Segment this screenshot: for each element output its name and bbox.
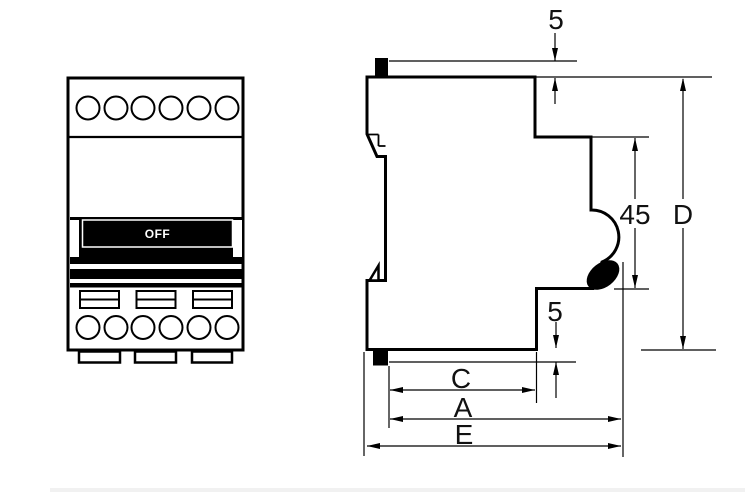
arrowhead-up xyxy=(680,78,686,91)
mounting-tab xyxy=(79,352,120,363)
dim-depth-c: C xyxy=(390,363,535,394)
arrowhead-down xyxy=(680,336,686,349)
front-view: OFF xyxy=(68,78,243,363)
page-edge-strip xyxy=(50,488,745,492)
arrowhead-right xyxy=(608,443,621,449)
switch-band-left-notch xyxy=(70,220,79,257)
front-bar-upper xyxy=(70,269,242,279)
dim-label: E xyxy=(455,419,474,450)
dim-overall-depth-e: E xyxy=(367,419,621,450)
technical-drawing: OFF xyxy=(0,0,745,493)
arrowhead-right xyxy=(522,387,535,393)
arrowhead-up xyxy=(553,362,559,375)
side-view xyxy=(367,58,625,366)
dim-label: 5 xyxy=(548,4,564,35)
arrowhead-down xyxy=(553,335,559,348)
dim-bottom-clip-protrusion: 5 xyxy=(547,296,563,398)
arrowhead-up xyxy=(632,138,638,151)
mounting-tab xyxy=(135,352,176,363)
dim-overall-height: D xyxy=(673,78,693,349)
dim-top-clip-protrusion: 5 xyxy=(548,4,564,104)
mounting-tabs xyxy=(79,352,232,363)
side-view-outline xyxy=(367,77,619,350)
arrowhead-left xyxy=(367,443,380,449)
off-switch-label: OFF xyxy=(145,227,171,241)
dim-label: D xyxy=(673,199,693,230)
arrowhead-right xyxy=(608,416,621,422)
switch-band-right-notch xyxy=(233,220,242,257)
din-clip-bottom-tab xyxy=(373,351,388,366)
arrowhead-up xyxy=(552,78,558,91)
dim-label: C xyxy=(451,363,471,394)
front-bar-lower xyxy=(70,283,242,288)
mounting-tab xyxy=(192,352,232,363)
din-clip-top-tab xyxy=(375,58,388,77)
arrowhead-left xyxy=(390,387,403,393)
arrowhead-down xyxy=(632,275,638,288)
dim-recess-height: 45 xyxy=(619,138,650,288)
dim-label: 5 xyxy=(547,296,563,327)
screw-slots xyxy=(80,291,232,308)
arrowhead-left xyxy=(390,416,403,422)
dim-depth-a: A xyxy=(390,392,621,423)
drawing-page: OFF xyxy=(0,0,745,493)
dim-label: 45 xyxy=(619,199,650,230)
din-clip-lower-barb xyxy=(370,266,379,281)
arrowhead-down xyxy=(552,48,558,61)
